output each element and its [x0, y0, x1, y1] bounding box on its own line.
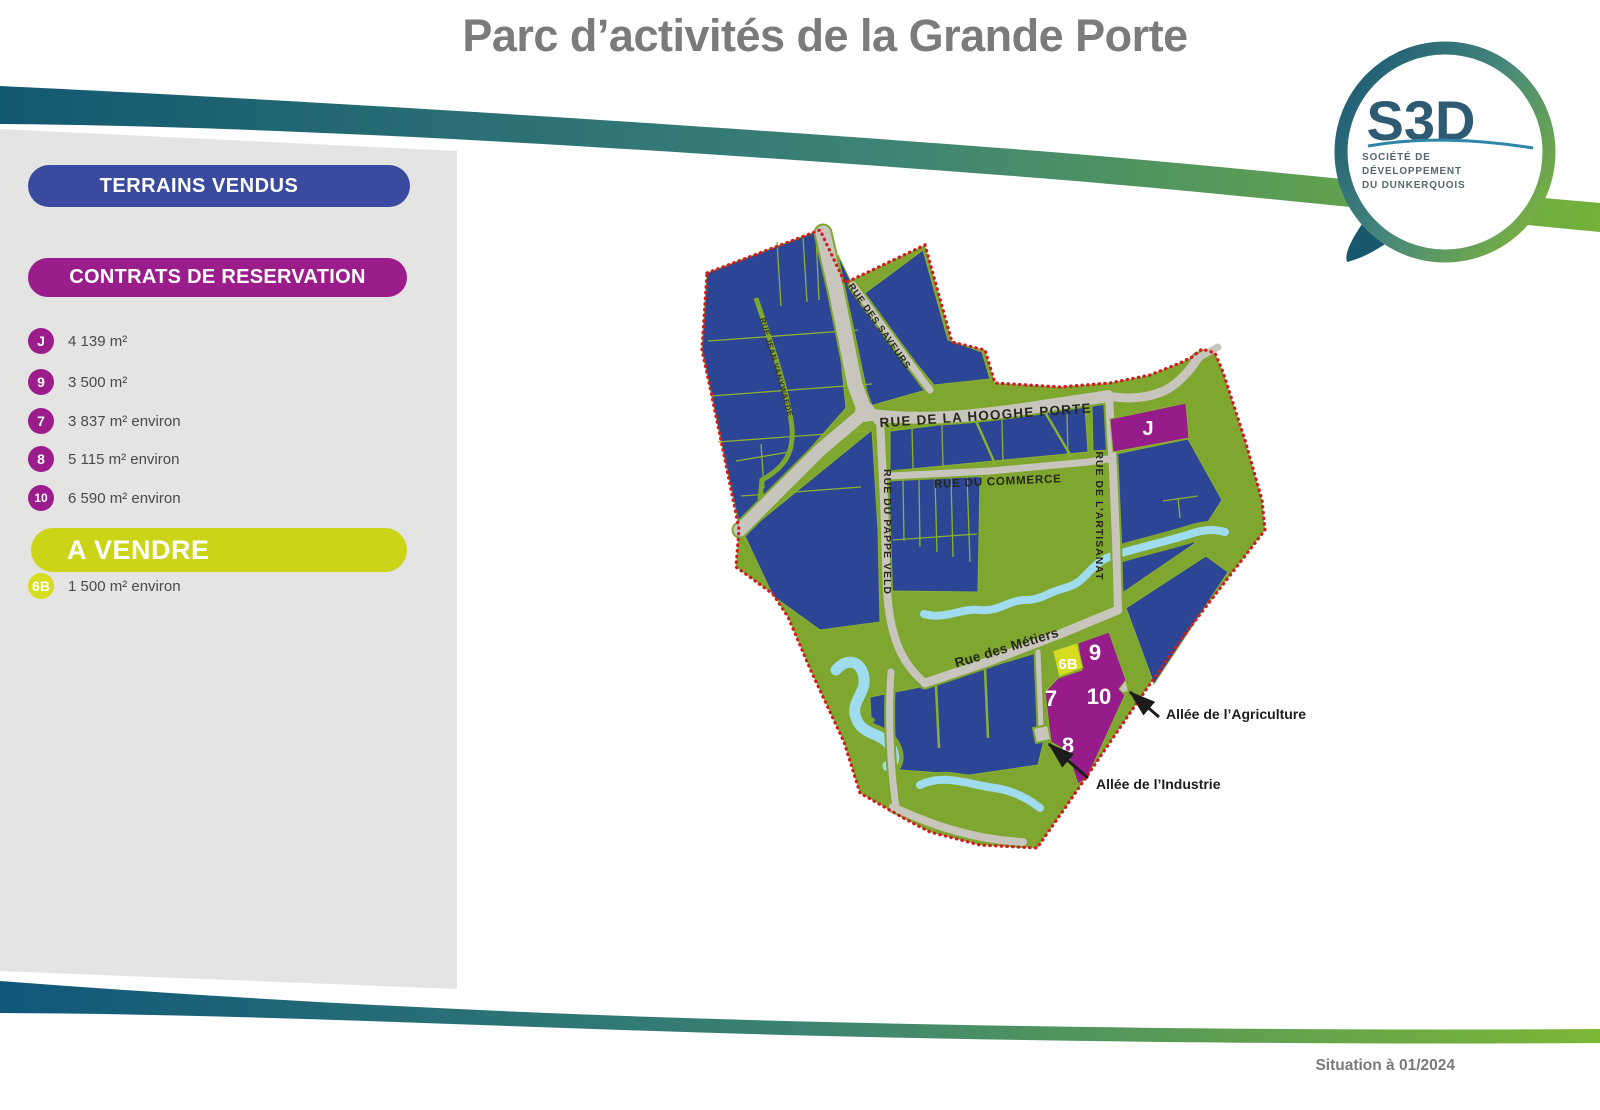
callout-industrie: Allée de l’Industrie: [1096, 776, 1221, 792]
legend-banner-for-sale: A VENDRE: [31, 528, 407, 572]
plot-badge-9: 9: [28, 369, 54, 395]
page: Parc d’activités de la Grande Porte TERR…: [0, 0, 1600, 1110]
legend-item-10: 10 6 590 m² environ: [28, 485, 181, 511]
legend-banner-reservation: CONTRATS DE RESERVATION: [28, 258, 407, 297]
plot-label-10: 10: [1087, 684, 1111, 709]
logo-org-line: DÉVELOPPEMENT: [1362, 164, 1462, 177]
street-label-artisanat: RUE DE L’ARTISANAT: [1093, 451, 1105, 580]
plot-label-8: 8: [1062, 733, 1074, 758]
legend-item-7: 7 3 837 m² environ: [28, 408, 181, 434]
plot-label-J: J: [1142, 418, 1153, 440]
plot-area-label: 5 115 m² environ: [68, 451, 179, 468]
plot-label-6B: 6B: [1058, 656, 1077, 673]
plot-area-label: 1 500 m² environ: [68, 578, 181, 595]
plot-badge-10: 10: [28, 485, 54, 511]
site-map: RUE DE LA HOOGHE PORTE RUE DU COMMERCE R…: [640, 200, 1340, 880]
street-label-pappeveld: RUE DU PAPPE VELD: [881, 469, 893, 595]
status-date: Situation à 01/2024: [1255, 1057, 1455, 1075]
plot-area-label: 3 500 m²: [68, 374, 127, 391]
legend-item-J: J 4 139 m²: [28, 328, 127, 354]
plot-label-7: 7: [1045, 686, 1057, 711]
s3d-logo: S3D SOCIÉTÉ DE DÉVELOPPEMENT DU DUNKERQU…: [1318, 25, 1578, 280]
plot-badge-8: 8: [28, 446, 54, 472]
legend-item-9: 9 3 500 m²: [28, 369, 127, 395]
plot-area-label: 4 139 m²: [68, 333, 127, 350]
plot-badge-6B: 6B: [28, 573, 54, 599]
plot-label-9: 9: [1089, 640, 1101, 665]
callout-agriculture: Allée de l’Agriculture: [1166, 706, 1306, 722]
legend-item-6B: 6B 1 500 m² environ: [28, 573, 181, 599]
logo-org-line: DU DUNKERQUOIS: [1362, 180, 1465, 191]
plot-badge-J: J: [28, 328, 54, 354]
page-title: Parc d’activités de la Grande Porte: [440, 10, 1210, 62]
legend-item-8: 8 5 115 m² environ: [28, 446, 179, 472]
plot-badge-7: 7: [28, 408, 54, 434]
plot-area-label: 6 590 m² environ: [68, 490, 181, 507]
legend-banner-sold: TERRAINS VENDUS: [28, 165, 410, 207]
allee-industrie-stub: [1033, 725, 1051, 743]
logo-org-line: SOCIÉTÉ DE: [1362, 150, 1431, 163]
bottom-ribbon: [0, 981, 1600, 1044]
plot-area-label: 3 837 m² environ: [68, 413, 181, 430]
